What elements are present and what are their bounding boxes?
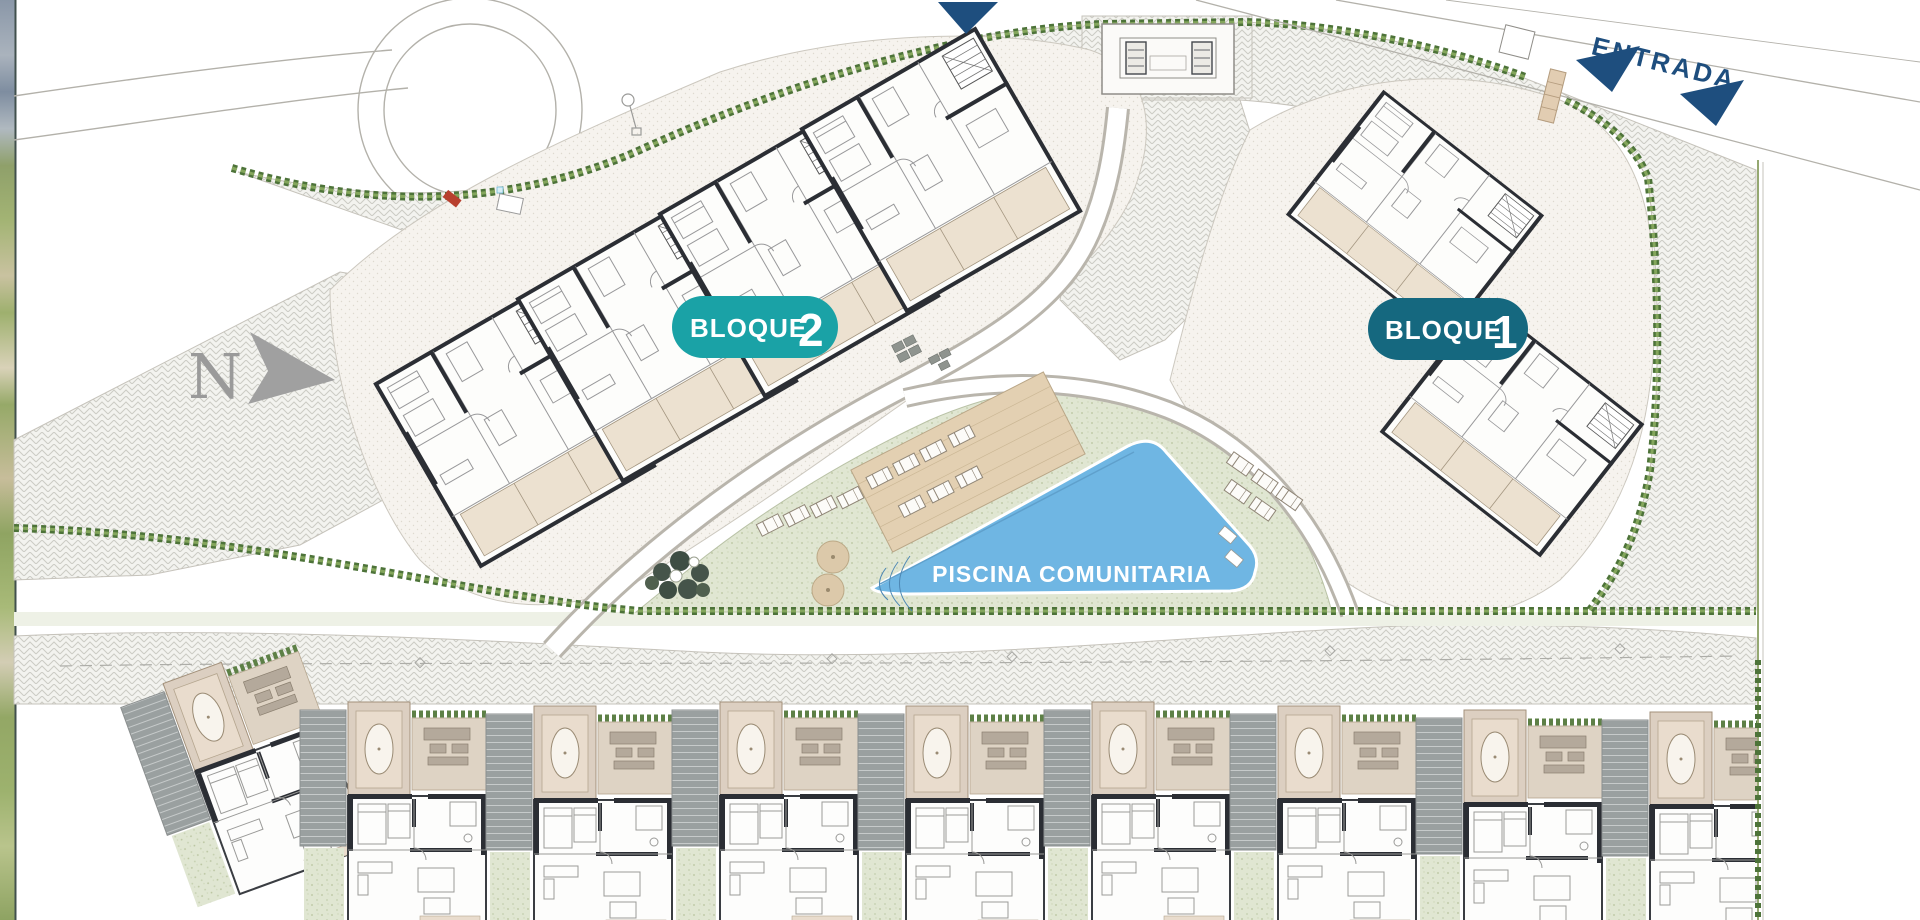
pool-label: PISCINA COMUNITARIA — [932, 561, 1212, 587]
site-boundary-east — [1758, 150, 1920, 920]
block-2-badge: BLOQUE 2 — [672, 296, 838, 358]
utility-building — [1102, 24, 1234, 94]
aerial-photo-strip — [0, 0, 16, 920]
townhouse-unit — [1416, 710, 1602, 920]
block-2-badge-number: 2 — [798, 304, 824, 356]
block-1-badge: BLOQUE 1 — [1368, 298, 1528, 360]
townhouse-unit — [300, 702, 486, 920]
north-label: N — [188, 340, 242, 413]
block-1-badge-number: 1 — [1492, 306, 1518, 358]
townhouse-unit — [486, 706, 672, 920]
block-2-badge-label: BLOQUE — [690, 313, 807, 343]
townhouse-unit — [1230, 706, 1416, 920]
utility-marker — [497, 187, 503, 193]
townhouse-unit — [858, 706, 1044, 920]
site-plan-drawing: PISCINA COMUNITARIA BLOQUE 2 BLOQUE 1 — [0, 0, 1920, 920]
block-1-badge-label: BLOQUE — [1385, 315, 1502, 345]
site-plan-page: PISCINA COMUNITARIA BLOQUE 2 BLOQUE 1 — [0, 0, 1920, 920]
townhouse-unit — [1044, 702, 1230, 920]
townhouse-unit — [672, 702, 858, 920]
